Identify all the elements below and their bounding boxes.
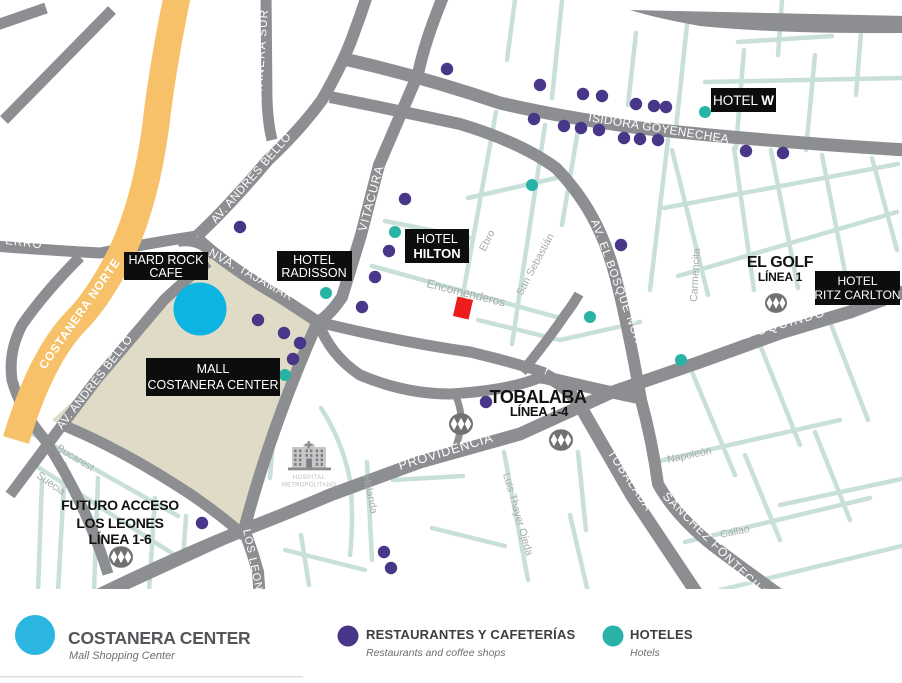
svg-text:RADISSON: RADISSON — [281, 266, 346, 280]
svg-text:HOTEL: HOTEL — [293, 253, 335, 267]
svg-text:HILTON: HILTON — [413, 246, 460, 261]
svg-text:LOS LEONES: LOS LEONES — [76, 515, 163, 531]
svg-text:LÍNEA 1-6: LÍNEA 1-6 — [89, 531, 152, 547]
svg-text:Restaurants and coffee shops: Restaurants and coffee shops — [366, 647, 506, 659]
svg-text:HOTELES: HOTELES — [630, 627, 693, 642]
svg-text:CAFE: CAFE — [149, 266, 182, 280]
svg-text:HARD ROCK: HARD ROCK — [128, 253, 204, 267]
svg-text:Hotels: Hotels — [630, 647, 661, 659]
svg-text:HOSPITAL: HOSPITAL — [293, 475, 326, 481]
svg-text:HOTEL: HOTEL — [416, 232, 458, 246]
svg-text:HOTEL W: HOTEL W — [713, 93, 774, 108]
svg-text:Mall Shopping Center: Mall Shopping Center — [69, 650, 176, 662]
svg-text:LÍNEA 1: LÍNEA 1 — [758, 269, 803, 284]
svg-text:HOTEL: HOTEL — [837, 274, 877, 288]
svg-text:RESTAURANTES Y CAFETERÍAS: RESTAURANTES Y CAFETERÍAS — [366, 627, 576, 642]
svg-text:EL GOLF: EL GOLF — [747, 254, 814, 271]
svg-text:RITZ CARLTON: RITZ CARLTON — [814, 288, 900, 302]
svg-text:COSTANERA CENTER: COSTANERA CENTER — [147, 378, 278, 392]
svg-text:MALL: MALL — [197, 362, 230, 376]
svg-text:LÍNEA 1-4: LÍNEA 1-4 — [510, 404, 569, 419]
svg-text:COSTANERA CENTER: COSTANERA CENTER — [68, 628, 251, 648]
svg-text:FUTURO ACCESO: FUTURO ACCESO — [61, 497, 179, 513]
svg-text:METROPOLITANO: METROPOLITANO — [282, 483, 336, 489]
